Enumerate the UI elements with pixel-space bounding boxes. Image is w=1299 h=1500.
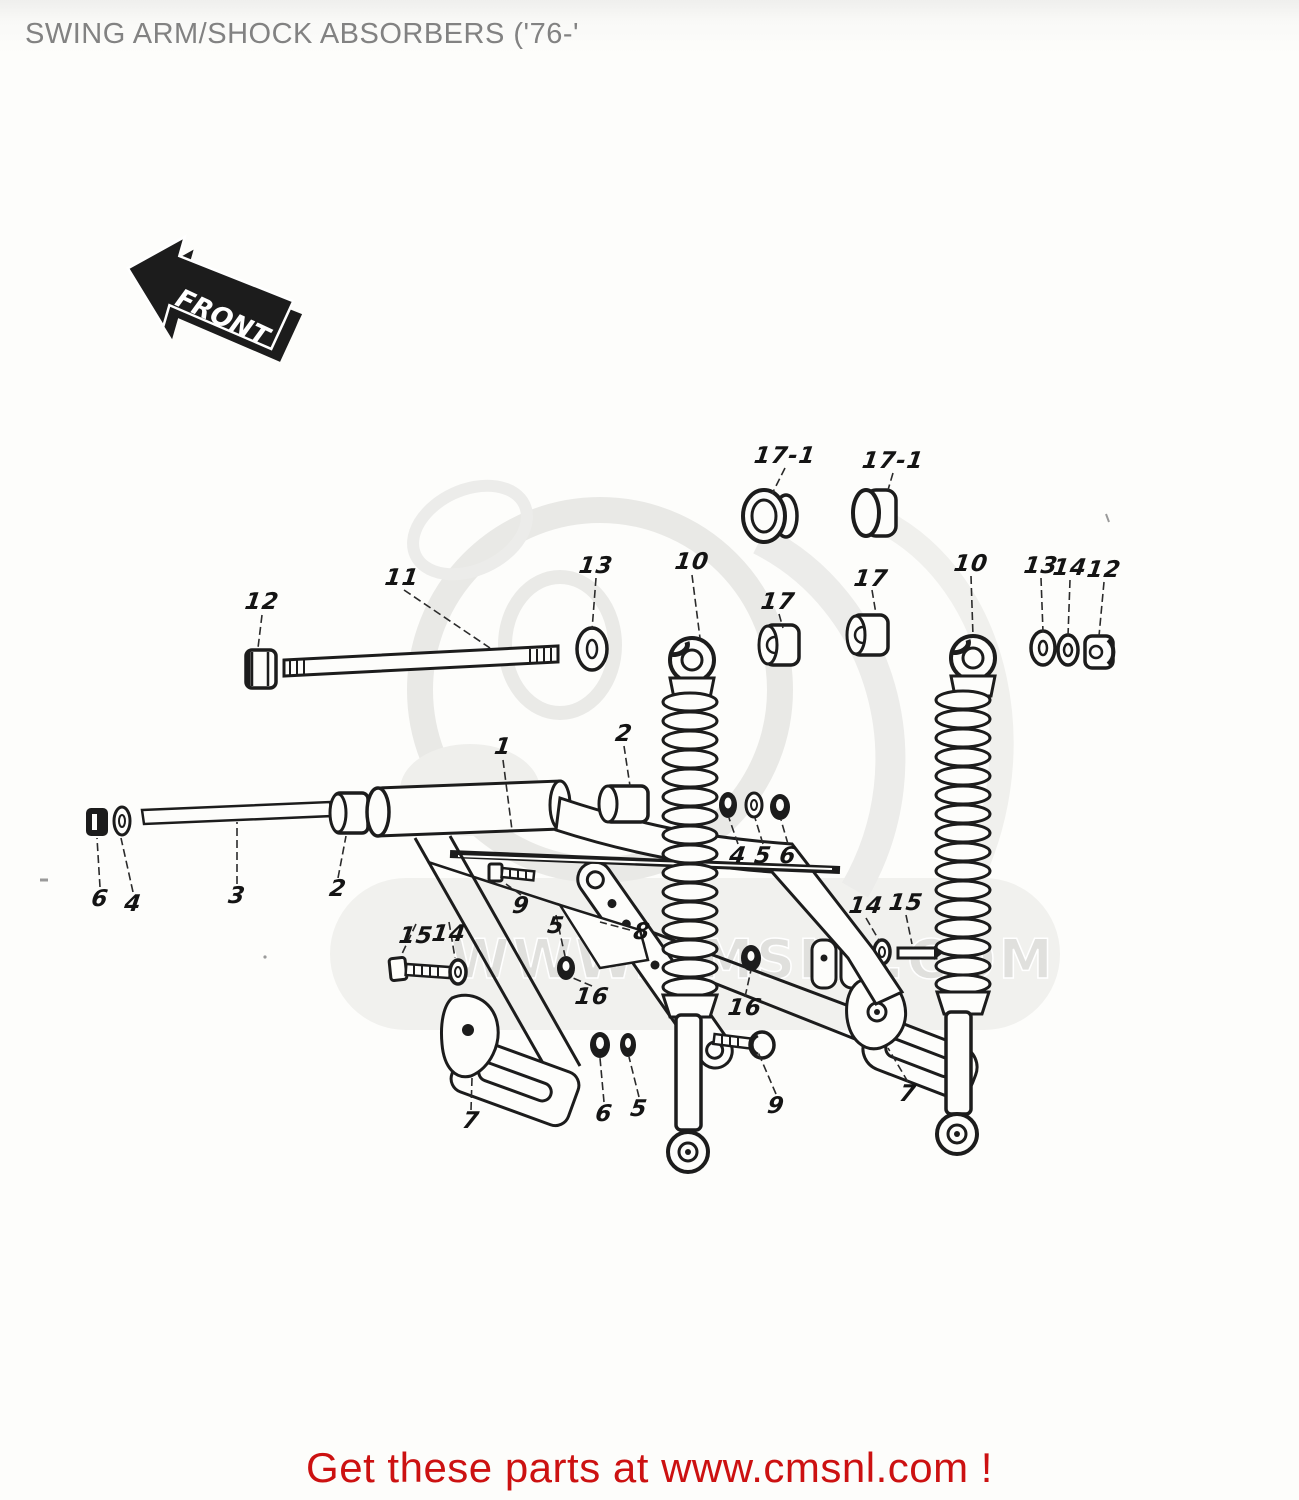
nut-12-right: [1085, 636, 1113, 668]
bushing-2-left: [330, 793, 368, 833]
bushing-17-1-right: [853, 490, 896, 536]
parts-fiche-page: SWING ARM/SHOCK ABSORBERS ('76-' WWW.CMS…: [0, 0, 1299, 1500]
washer-14-right: [1058, 635, 1078, 665]
footer-banner: Get these parts at www.cmsnl.com !: [0, 1444, 1299, 1492]
bushing-17-right: [847, 615, 888, 655]
pin-15: [898, 948, 936, 958]
part-label-16[interactable]: 16: [726, 995, 764, 1021]
part-label-11[interactable]: 11: [383, 565, 421, 591]
part-label-12[interactable]: 12: [243, 589, 281, 615]
exploded-parts-diagram: WWW.CMSNL.COM FRONT: [0, 0, 1299, 1500]
part-label-17-1[interactable]: 17-1: [860, 448, 925, 474]
left-shock-absorber: [663, 638, 717, 1172]
right-shock-absorber: [936, 636, 995, 1154]
pivot-sleeve-3: [142, 802, 332, 824]
center-washers: [719, 792, 790, 820]
front-arrow: FRONT: [112, 224, 313, 372]
part-label-14[interactable]: 14: [1051, 555, 1089, 581]
bushing-17-1-left: [743, 490, 797, 542]
part-label-14[interactable]: 14: [430, 921, 468, 947]
bushing-2-right: [599, 786, 648, 822]
footer-link[interactable]: Get these parts at www.cmsnl.com !: [306, 1444, 993, 1492]
part-label-10[interactable]: 10: [952, 551, 990, 577]
part-label-13[interactable]: 13: [577, 553, 615, 579]
part-label-15[interactable]: 15: [887, 890, 925, 916]
diagram-artwork: WWW.CMSNL.COM FRONT: [0, 0, 1299, 1500]
washer-13-right: [1031, 631, 1055, 665]
part-label-14[interactable]: 14: [847, 893, 885, 919]
part-label-17[interactable]: 17: [852, 566, 890, 592]
part-label-15[interactable]: 15: [397, 923, 435, 949]
bushing-17-left: [759, 625, 799, 665]
part-label-12[interactable]: 12: [1085, 557, 1123, 583]
part-label-17-1[interactable]: 17-1: [752, 443, 817, 469]
part-label-17[interactable]: 17: [759, 589, 797, 615]
washer-13-left: [577, 628, 607, 670]
washer-4-left: [114, 807, 130, 835]
part-label-10[interactable]: 10: [673, 549, 711, 575]
part-label-16[interactable]: 16: [573, 984, 611, 1010]
